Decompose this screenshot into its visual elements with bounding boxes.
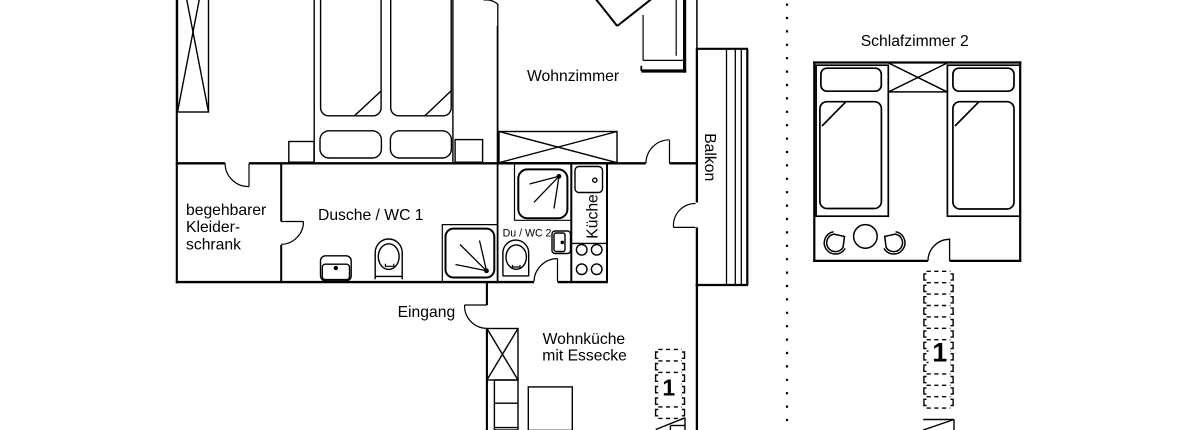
svg-text:1: 1 xyxy=(662,375,675,401)
svg-text:begehbarer: begehbarer xyxy=(186,202,266,219)
svg-text:schrank: schrank xyxy=(186,236,241,253)
svg-text:Kleider-: Kleider- xyxy=(186,219,240,236)
svg-text:mit Essecke: mit Essecke xyxy=(542,348,627,365)
svg-text:Du / WC 2: Du / WC 2 xyxy=(503,227,552,239)
svg-text:Küche: Küche xyxy=(584,194,601,239)
svg-text:Wohnzimmer: Wohnzimmer xyxy=(527,68,619,85)
svg-text:1: 1 xyxy=(932,338,947,368)
svg-text:Balkon: Balkon xyxy=(701,133,718,181)
svg-text:Dusche / WC 1: Dusche / WC 1 xyxy=(318,207,424,224)
svg-text:Eingang: Eingang xyxy=(398,304,456,321)
svg-text:Schlafzimmer 2: Schlafzimmer 2 xyxy=(861,33,969,50)
svg-text:Wohnküche: Wohnküche xyxy=(543,331,626,348)
